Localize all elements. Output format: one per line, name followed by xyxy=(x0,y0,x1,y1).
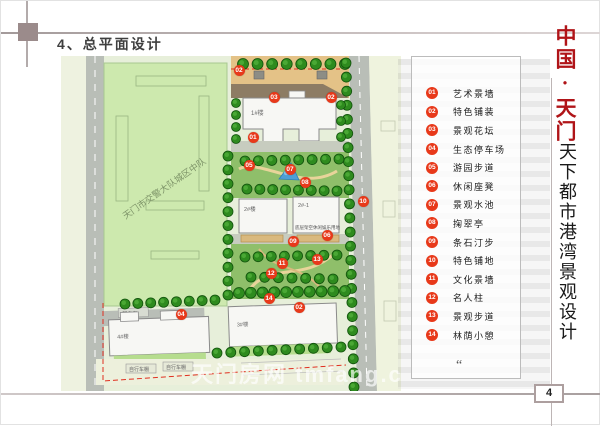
legend-label: 林荫小憩 xyxy=(453,329,495,342)
legend-number-badge: 03 xyxy=(426,124,438,136)
legend-number-badge: 02 xyxy=(426,106,438,118)
legend-number-badge: 13 xyxy=(426,310,438,322)
brand-title: 中国·天门 xyxy=(554,25,580,143)
legend-number-badge: 11 xyxy=(426,273,438,285)
legend-item-10: 10特色铺地 xyxy=(412,251,520,270)
legend-label: 生态停车场 xyxy=(453,143,506,156)
legend-item-09: 09条石汀步 xyxy=(412,233,520,252)
page-title: 4、总平面设计 xyxy=(57,34,163,54)
page-number-box: 4 xyxy=(534,384,564,403)
legend-number-badge: 05 xyxy=(426,162,438,174)
legend-number-badge: 08 xyxy=(426,217,438,229)
bike-shed-2-label: 自行车棚 xyxy=(166,364,186,371)
legend-label: 游园步道 xyxy=(453,161,495,174)
site-plan: 天门市交警大队城区中队 1#楼 2#楼 2#-1 底层架空休闲娱 xyxy=(61,56,401,391)
legend-label: 艺术景墙 xyxy=(453,87,495,100)
building-2b-label: 2#-1 xyxy=(298,203,309,209)
corner-square-decoration xyxy=(18,23,38,41)
legend-item-14: 14林荫小憩 xyxy=(412,326,520,345)
brand-subtitle: 天下都市港湾景观设计 xyxy=(556,142,580,342)
building-2-caption: 底层架空休闲娱乐用地 xyxy=(295,224,340,231)
legend-item-08: 08掬翠亭 xyxy=(412,214,520,233)
slide-page: { "page": { "title": "4、总平面设计", "page_nu… xyxy=(0,0,600,425)
legend-box: 01艺术景墙02特色铺装03景观花坛04生态停车场05游园步道06休闲座凳07景… xyxy=(411,56,521,379)
path-band-1 xyxy=(231,141,349,152)
legend-quote-mark: “ xyxy=(456,358,462,374)
legend-item-03: 03景观花坛 xyxy=(412,121,520,140)
divider-vertical-line xyxy=(551,78,552,426)
legend-item-04: 04生态停车场 xyxy=(412,140,520,159)
legend-item-12: 12名人柱 xyxy=(412,289,520,308)
building-1-label: 1#楼 xyxy=(251,109,264,117)
neighbor-parcel: 天门市交警大队城区中队 xyxy=(104,63,227,306)
legend-label: 景观水池 xyxy=(453,198,495,211)
legend-label: 条石汀步 xyxy=(453,236,495,249)
legend-label: 休闲座凳 xyxy=(453,180,495,193)
legend-number-badge: 14 xyxy=(426,329,438,341)
legend-number-badge: 12 xyxy=(426,292,438,304)
tree-column-garden-west xyxy=(223,151,233,300)
legend-item-13: 13景观步道 xyxy=(412,307,520,326)
legend-item-11: 11文化景墙 xyxy=(412,270,520,289)
legend-label: 特色铺地 xyxy=(453,254,495,267)
legend-number-badge: 01 xyxy=(426,87,438,99)
legend-label: 名人柱 xyxy=(453,291,485,304)
legend-number-badge: 09 xyxy=(426,236,438,248)
legend-label: 特色铺装 xyxy=(453,105,495,118)
legend-label: 景观花坛 xyxy=(453,124,495,137)
building-2a-label: 2#楼 xyxy=(244,205,256,213)
legend-label: 文化景墙 xyxy=(453,273,495,286)
legend-label: 掬翠亭 xyxy=(453,217,485,230)
pergola-band xyxy=(231,234,349,244)
legend-item-02: 02特色铺装 xyxy=(412,103,520,122)
bike-shed-1-label: 自行车棚 xyxy=(129,366,149,373)
legend-item-05: 05游园步道 xyxy=(412,158,520,177)
legend-item-06: 06休闲座凳 xyxy=(412,177,520,196)
plan-left-margin xyxy=(61,56,86,391)
page-number: 4 xyxy=(546,387,552,399)
legend-number-badge: 04 xyxy=(426,143,438,155)
tree-pocket-bldg1-east xyxy=(337,101,346,142)
legend-number-badge: 10 xyxy=(426,255,438,267)
legend-item-07: 07景观水池 xyxy=(412,196,520,215)
legend-number-badge: 07 xyxy=(426,199,438,211)
footer-rule xyxy=(1,393,600,395)
left-road xyxy=(86,56,104,391)
legend-label: 景观步道 xyxy=(453,310,495,323)
legend-number-badge: 06 xyxy=(426,180,438,192)
legend-item-01: 01艺术景墙 xyxy=(412,84,520,103)
